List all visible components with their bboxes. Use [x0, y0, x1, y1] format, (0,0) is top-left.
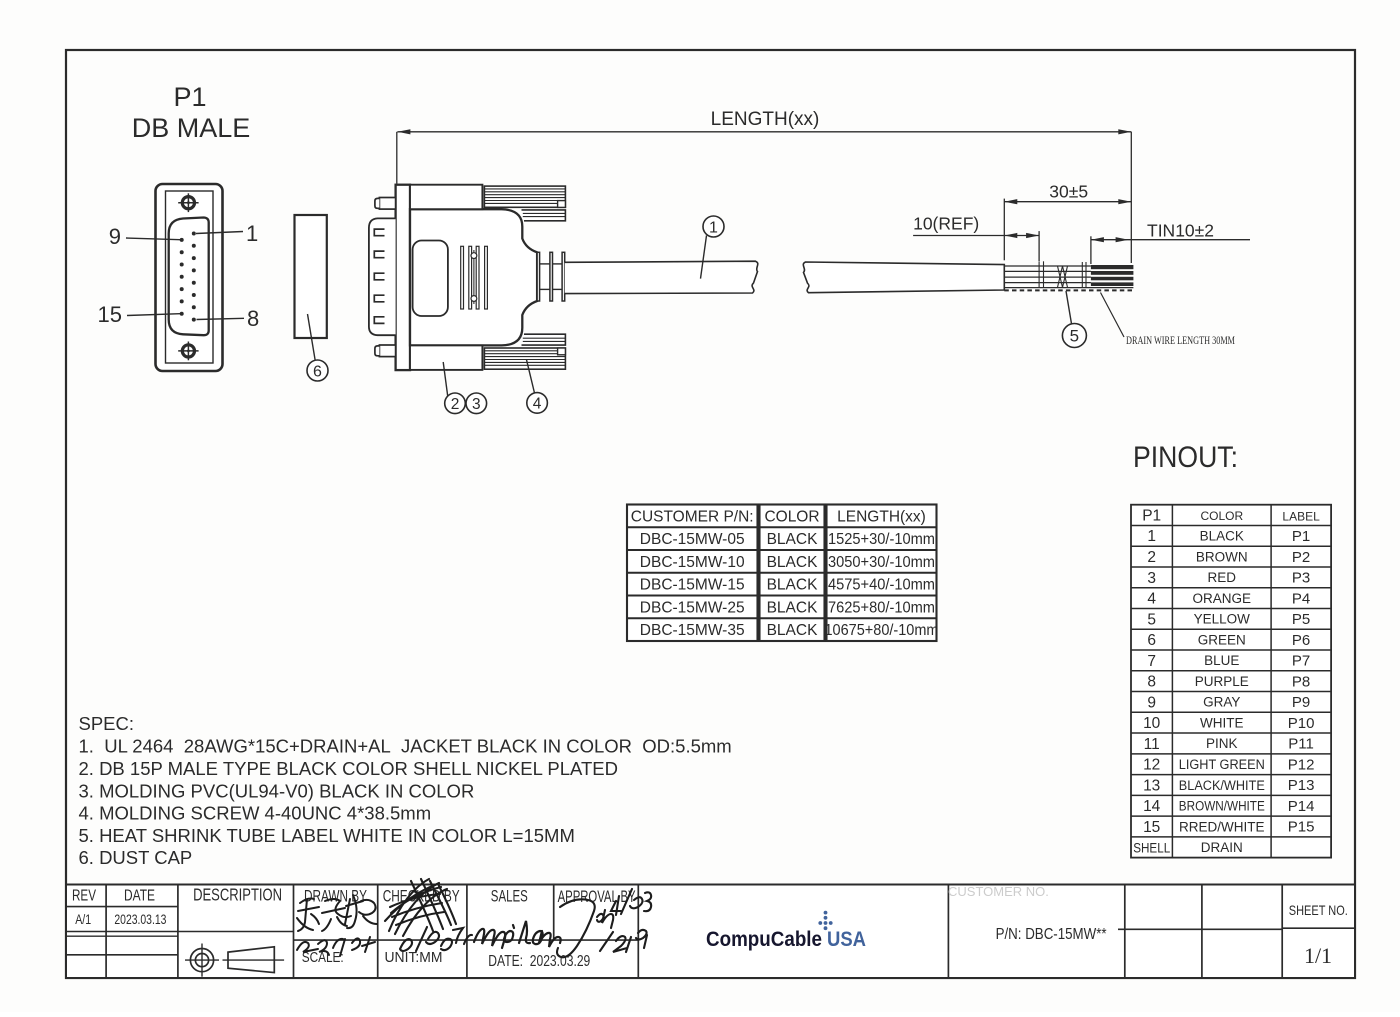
svg-text:BLUE: BLUE: [1204, 653, 1239, 668]
svg-text:DESCRIPTION: DESCRIPTION: [193, 884, 282, 904]
svg-text:P14: P14: [1288, 798, 1315, 815]
svg-text:BLACK: BLACK: [1200, 529, 1244, 544]
svg-text:5: 5: [1147, 611, 1156, 628]
svg-text:CompuCable: CompuCable: [706, 928, 822, 951]
svg-text:13: 13: [1143, 777, 1160, 794]
svg-text:DRAIN: DRAIN: [1201, 840, 1243, 855]
svg-text:PURPLE: PURPLE: [1195, 674, 1249, 689]
svg-text:DBC-15MW-05: DBC-15MW-05: [640, 531, 745, 548]
svg-text:5. HEAT SHRINK TUBE LABEL WHIT: 5. HEAT SHRINK TUBE LABEL WHITE IN COLOR…: [79, 825, 575, 846]
svg-text:CUSTOMER P/N:: CUSTOMER P/N:: [631, 508, 754, 525]
svg-text:1525+30/-10mm: 1525+30/-10mm: [828, 531, 935, 548]
svg-text:BROWN/WHITE: BROWN/WHITE: [1179, 799, 1265, 814]
svg-text:6. DUST CAP: 6. DUST CAP: [79, 847, 193, 868]
svg-text:P/N: DBC-15MW**: P/N: DBC-15MW**: [996, 926, 1107, 943]
svg-text:P8: P8: [1292, 673, 1310, 690]
svg-text:11: 11: [1144, 736, 1160, 753]
svg-text:LENGTH(xx): LENGTH(xx): [837, 508, 926, 525]
svg-text:15: 15: [98, 302, 122, 327]
svg-text:SPEC:: SPEC:: [79, 713, 135, 734]
svg-text:BLACK/WHITE: BLACK/WHITE: [1179, 778, 1265, 793]
svg-text:SALES: SALES: [491, 887, 528, 906]
svg-text:BLACK: BLACK: [767, 599, 818, 616]
svg-text:COLOR: COLOR: [764, 508, 819, 525]
svg-text:12: 12: [1143, 757, 1160, 774]
svg-text:3: 3: [472, 396, 481, 413]
svg-text:4575+40/-10mm: 4575+40/-10mm: [828, 577, 935, 594]
svg-text:9: 9: [1147, 694, 1156, 711]
svg-text:P1: P1: [173, 82, 206, 112]
svg-text:9: 9: [109, 224, 121, 249]
svg-text:3050+30/-10mm: 3050+30/-10mm: [828, 554, 935, 571]
svg-text:7625+80/-10mm: 7625+80/-10mm: [828, 599, 935, 616]
svg-text:UNIT:MM: UNIT:MM: [385, 950, 443, 966]
svg-text:10675+80/-10mm: 10675+80/-10mm: [825, 622, 939, 639]
svg-text:LIGHT GREEN: LIGHT GREEN: [1179, 757, 1265, 772]
svg-text:P9: P9: [1292, 694, 1310, 711]
svg-text:1/1: 1/1: [1304, 943, 1332, 968]
svg-text:4: 4: [1147, 591, 1156, 608]
svg-text:P12: P12: [1288, 756, 1315, 773]
svg-text:RED: RED: [1208, 570, 1237, 585]
svg-text:A/1: A/1: [75, 912, 91, 927]
svg-text:1: 1: [246, 221, 258, 246]
svg-text:2: 2: [1147, 549, 1156, 566]
svg-text:P5: P5: [1292, 611, 1310, 628]
svg-text:6: 6: [313, 363, 322, 380]
svg-text:PINOUT:: PINOUT:: [1133, 441, 1238, 474]
svg-text:ORANGE: ORANGE: [1193, 591, 1252, 606]
svg-text:1. UL 2464 28AWG*15C+DRAIN+A: 1. UL 2464 28AWG*15C+DRAIN+AL JACKET BLA…: [79, 736, 732, 757]
svg-text:DATE: 2023.03.29: DATE: 2023.03.29: [488, 953, 590, 970]
svg-text:P4: P4: [1292, 590, 1310, 607]
svg-text:P3: P3: [1292, 570, 1310, 587]
svg-text:DBC-15MW-25: DBC-15MW-25: [640, 599, 745, 616]
svg-text:YELLOW: YELLOW: [1194, 612, 1251, 627]
svg-text:7: 7: [1147, 653, 1156, 670]
svg-text:SHELL: SHELL: [1133, 841, 1170, 856]
svg-text:APPROVAL BY: APPROVAL BY: [558, 887, 636, 906]
svg-text:REV: REV: [72, 887, 96, 904]
svg-text:6: 6: [1147, 632, 1156, 649]
svg-text:RRED/WHITE: RRED/WHITE: [1179, 819, 1265, 834]
svg-text:P1: P1: [1292, 528, 1310, 545]
svg-text:SCALE:: SCALE:: [302, 950, 344, 966]
svg-text:3. MOLDING PVC(UL94-V0) BLACK: 3. MOLDING PVC(UL94-V0) BLACK IN COLOR: [79, 780, 475, 801]
svg-text:DRAIN WIRE LENGTH 30MM: DRAIN WIRE LENGTH 30MM: [1126, 333, 1235, 347]
svg-text:COLOR: COLOR: [1200, 509, 1243, 523]
svg-text:2023.03.13: 2023.03.13: [114, 912, 166, 927]
svg-text:P11: P11: [1288, 736, 1314, 753]
svg-text:GREEN: GREEN: [1198, 632, 1246, 647]
svg-text:1: 1: [709, 219, 718, 236]
svg-text:P2: P2: [1292, 549, 1310, 566]
svg-text:DB MALE: DB MALE: [132, 113, 251, 143]
svg-text:BLACK: BLACK: [767, 622, 818, 639]
svg-text:1: 1: [1147, 528, 1156, 545]
svg-text:5: 5: [1070, 327, 1079, 346]
svg-text:P6: P6: [1292, 632, 1310, 649]
svg-text:3: 3: [1147, 570, 1156, 587]
svg-text:PINK: PINK: [1206, 736, 1238, 751]
svg-text:P13: P13: [1288, 777, 1315, 794]
svg-text:8: 8: [1147, 674, 1156, 691]
svg-text:P7: P7: [1292, 653, 1310, 670]
svg-text:10(REF): 10(REF): [913, 214, 979, 234]
svg-text:8: 8: [247, 306, 259, 331]
svg-text:15: 15: [1143, 819, 1160, 836]
svg-text:2. DB 15P MALE TYPE BLACK COLO: 2. DB 15P MALE TYPE BLACK COLOR SHELL NI…: [79, 758, 618, 779]
svg-text:GRAY: GRAY: [1203, 695, 1240, 710]
svg-text:SHEET NO.: SHEET NO.: [1289, 902, 1348, 918]
svg-text:30±5: 30±5: [1049, 182, 1088, 202]
svg-text:DBC-15MW-35: DBC-15MW-35: [640, 622, 745, 639]
svg-text:2: 2: [451, 396, 460, 413]
svg-text:BLACK: BLACK: [767, 554, 818, 571]
svg-text:LENGTH(xx): LENGTH(xx): [711, 109, 820, 130]
svg-text:P1: P1: [1142, 507, 1161, 524]
svg-text:BLACK: BLACK: [767, 531, 818, 548]
svg-text:USA: USA: [827, 928, 866, 951]
svg-text:BROWN: BROWN: [1196, 549, 1248, 564]
svg-text:CUSTOMER NO.: CUSTOMER NO.: [948, 884, 1049, 899]
svg-text:P15: P15: [1288, 819, 1315, 836]
svg-text:TIN10±2: TIN10±2: [1147, 221, 1214, 241]
svg-text:WHITE: WHITE: [1200, 715, 1244, 730]
svg-text:4: 4: [533, 395, 542, 412]
svg-text:DATE: DATE: [124, 887, 155, 904]
svg-text:14: 14: [1143, 798, 1161, 815]
svg-text:LABEL: LABEL: [1282, 509, 1320, 523]
svg-text:BLACK: BLACK: [767, 577, 818, 594]
svg-text:DBC-15MW-15: DBC-15MW-15: [640, 577, 745, 594]
svg-text:10: 10: [1143, 715, 1161, 732]
svg-text:DBC-15MW-10: DBC-15MW-10: [640, 554, 745, 571]
svg-text:P10: P10: [1288, 715, 1315, 732]
svg-text:4. MOLDING SCREW 4-40UNC 4*38.: 4. MOLDING SCREW 4-40UNC 4*38.5mm: [79, 803, 432, 824]
